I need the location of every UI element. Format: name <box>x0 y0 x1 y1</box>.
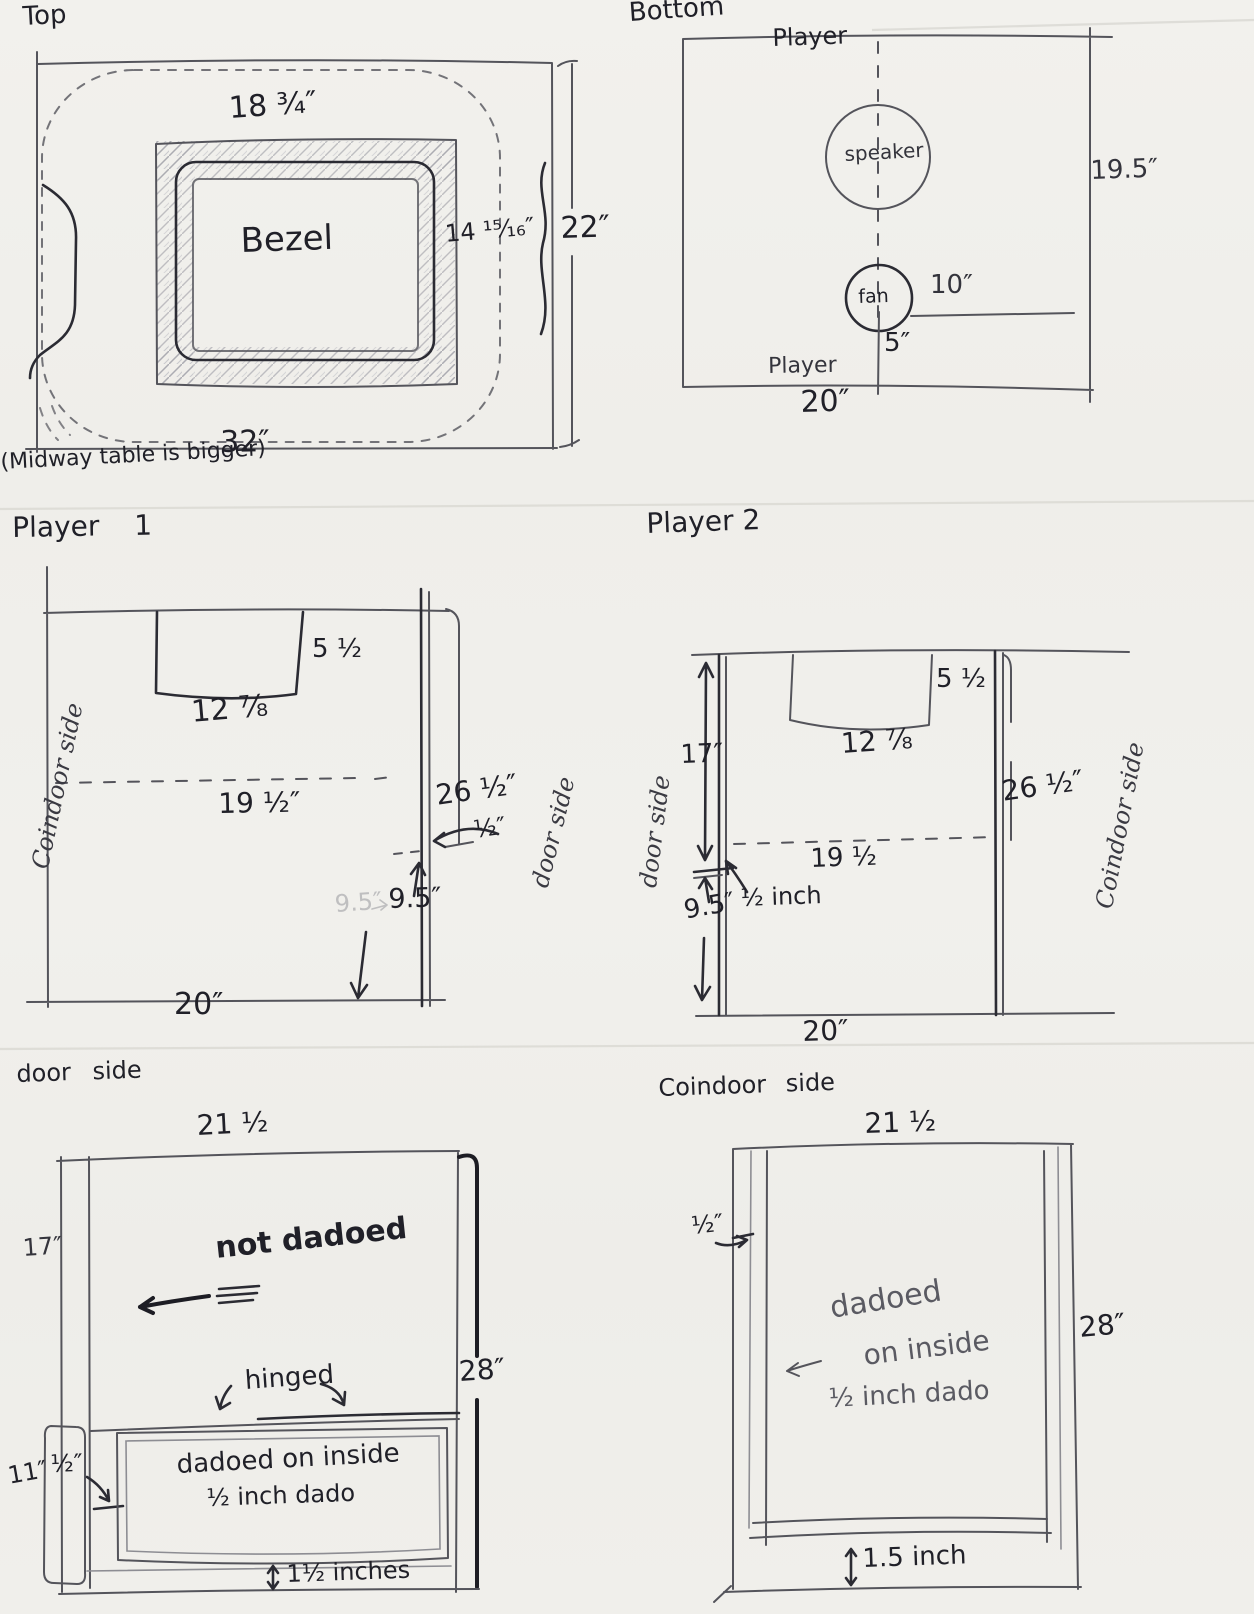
ds-hinge-line <box>258 1413 459 1419</box>
doorside-title: door side <box>16 1058 142 1086</box>
cd-half-arrow <box>716 1236 747 1247</box>
doorside-dado-note-2: ½ inch dado <box>206 1481 355 1510</box>
top-height-dim: 22″ <box>560 212 610 244</box>
player1-notch-width-dim: 12 ⅞ <box>190 691 269 728</box>
player2-panel-drawing <box>692 650 1129 1016</box>
p1-right-edge <box>421 589 422 1006</box>
dim-5-line <box>878 312 879 394</box>
p1-down-arrow <box>351 932 367 998</box>
player1-step-height-faint: 9.5″ <box>334 889 383 916</box>
scanned-sketch-page: Top 18 ¾″ Bezel 14 ¹⁵⁄₁₆″ 22″ 32″ (Midwa… <box>0 0 1254 1614</box>
player2-notch-width-dim: 12 ⅞ <box>840 725 913 758</box>
bezel-label: Bezel <box>240 221 334 258</box>
coindoor-panel-drawing <box>714 1143 1081 1602</box>
bezel-width-dim: 18 ¾″ <box>228 88 318 124</box>
p1-right-edge-2 <box>429 592 430 1006</box>
bottom-height-dim: 19.5″ <box>1090 156 1158 184</box>
fan-bottom-dim: 5″ <box>884 330 910 356</box>
speaker-label: speaker <box>844 140 924 164</box>
cd-dado-left-1 <box>749 1151 751 1528</box>
player2-17-dim: 17″ <box>680 741 724 768</box>
coindoor-dado-note-3: ½ inch dado <box>828 1378 990 1412</box>
player1-step-width-dim: ½″ <box>472 814 507 842</box>
cd-dado-right-2 <box>1058 1147 1061 1549</box>
player2-step-width-dim: ½ inch <box>740 883 822 910</box>
doorside-dado-offset-dim: ½″ <box>50 1451 83 1476</box>
bezel-height-dim: 14 ¹⁵⁄₁₆″ <box>444 214 535 246</box>
coindoor-dado-offset-dim: ½″ <box>690 1211 725 1238</box>
p2-down-arrow <box>695 938 710 1000</box>
corner-sketch-marks <box>40 406 70 440</box>
coindoor-title: Coindoor side <box>658 1070 835 1100</box>
ds-step-tick <box>94 1506 123 1509</box>
ds-not-dadoed-underlines <box>217 1286 259 1303</box>
bottom-width-dim: 20″ <box>800 386 850 418</box>
fan-offset-dim: 10″ <box>930 272 973 298</box>
sketch-drawing <box>0 0 1254 1614</box>
player-label-top: Player <box>772 23 847 50</box>
player1-step-height-dim: 9.5″ <box>388 884 442 913</box>
p1-notch <box>156 612 303 698</box>
doorside-bottom-gap-dim: 1½ inches <box>286 1558 410 1586</box>
player1-title: Player 1 <box>12 512 152 542</box>
player2-dashed-width-dim: 19 ½ <box>810 844 877 872</box>
p1-dashed-line <box>56 777 391 783</box>
player1-width-dim: 20″ <box>174 990 223 1020</box>
ds-gap-arrow <box>268 1566 278 1589</box>
player-label-bottom: Player <box>768 355 837 378</box>
p2-right-edge <box>995 651 996 1015</box>
fan-label: fan <box>858 287 889 307</box>
cd-dado-arrow <box>787 1361 821 1376</box>
board-height-dim: 11″ <box>6 1457 49 1487</box>
coindoor-height-dim: 28″ <box>1078 1310 1126 1342</box>
p1-step-dashes <box>394 851 421 854</box>
ds-bottom-line <box>59 1589 479 1594</box>
dim-22-line <box>558 61 579 447</box>
dim-10-line <box>911 313 1074 316</box>
top-view-title: Top <box>22 2 67 30</box>
cd-gap-arrow <box>846 1549 856 1585</box>
player2-notch-depth-dim: 5 ½ <box>936 666 986 692</box>
p2-notch <box>790 655 932 729</box>
player1-notch-depth-dim: 5 ½ <box>312 636 362 662</box>
player2-title: Player 2 <box>646 506 761 538</box>
coindoor-top-width-dim: 21 ½ <box>864 1107 937 1137</box>
coindoor-bottom-gap-dim: 1.5 inch <box>862 1542 967 1572</box>
cd-dado-right-1 <box>1044 1151 1047 1542</box>
doorside-height-dim: 28″ <box>458 1355 506 1386</box>
bezel-hatched-frame <box>156 139 457 387</box>
hinged-note: hinged <box>244 1362 335 1394</box>
p1-dim-height-line <box>445 609 473 847</box>
cd-bottom-line <box>714 1586 1081 1602</box>
doorside-17-dim: 17″ <box>22 1233 63 1260</box>
right-edge-wavy <box>541 163 546 334</box>
p2-dim-height-line <box>1004 655 1011 840</box>
doorside-top-width-dim: 21 ½ <box>196 1108 269 1140</box>
ds-hinged-arrow-left <box>216 1386 231 1409</box>
player1-dashed-width-dim: 19 ½″ <box>218 789 301 818</box>
cd-dado-left-2 <box>766 1151 767 1545</box>
player2-width-dim: 20″ <box>802 1016 849 1046</box>
ds-not-dadoed-arrow <box>140 1296 209 1313</box>
cd-dado-bottom <box>750 1518 1051 1538</box>
p2-outline <box>692 650 1129 1016</box>
bottom-view-title: Bottom <box>628 0 725 26</box>
